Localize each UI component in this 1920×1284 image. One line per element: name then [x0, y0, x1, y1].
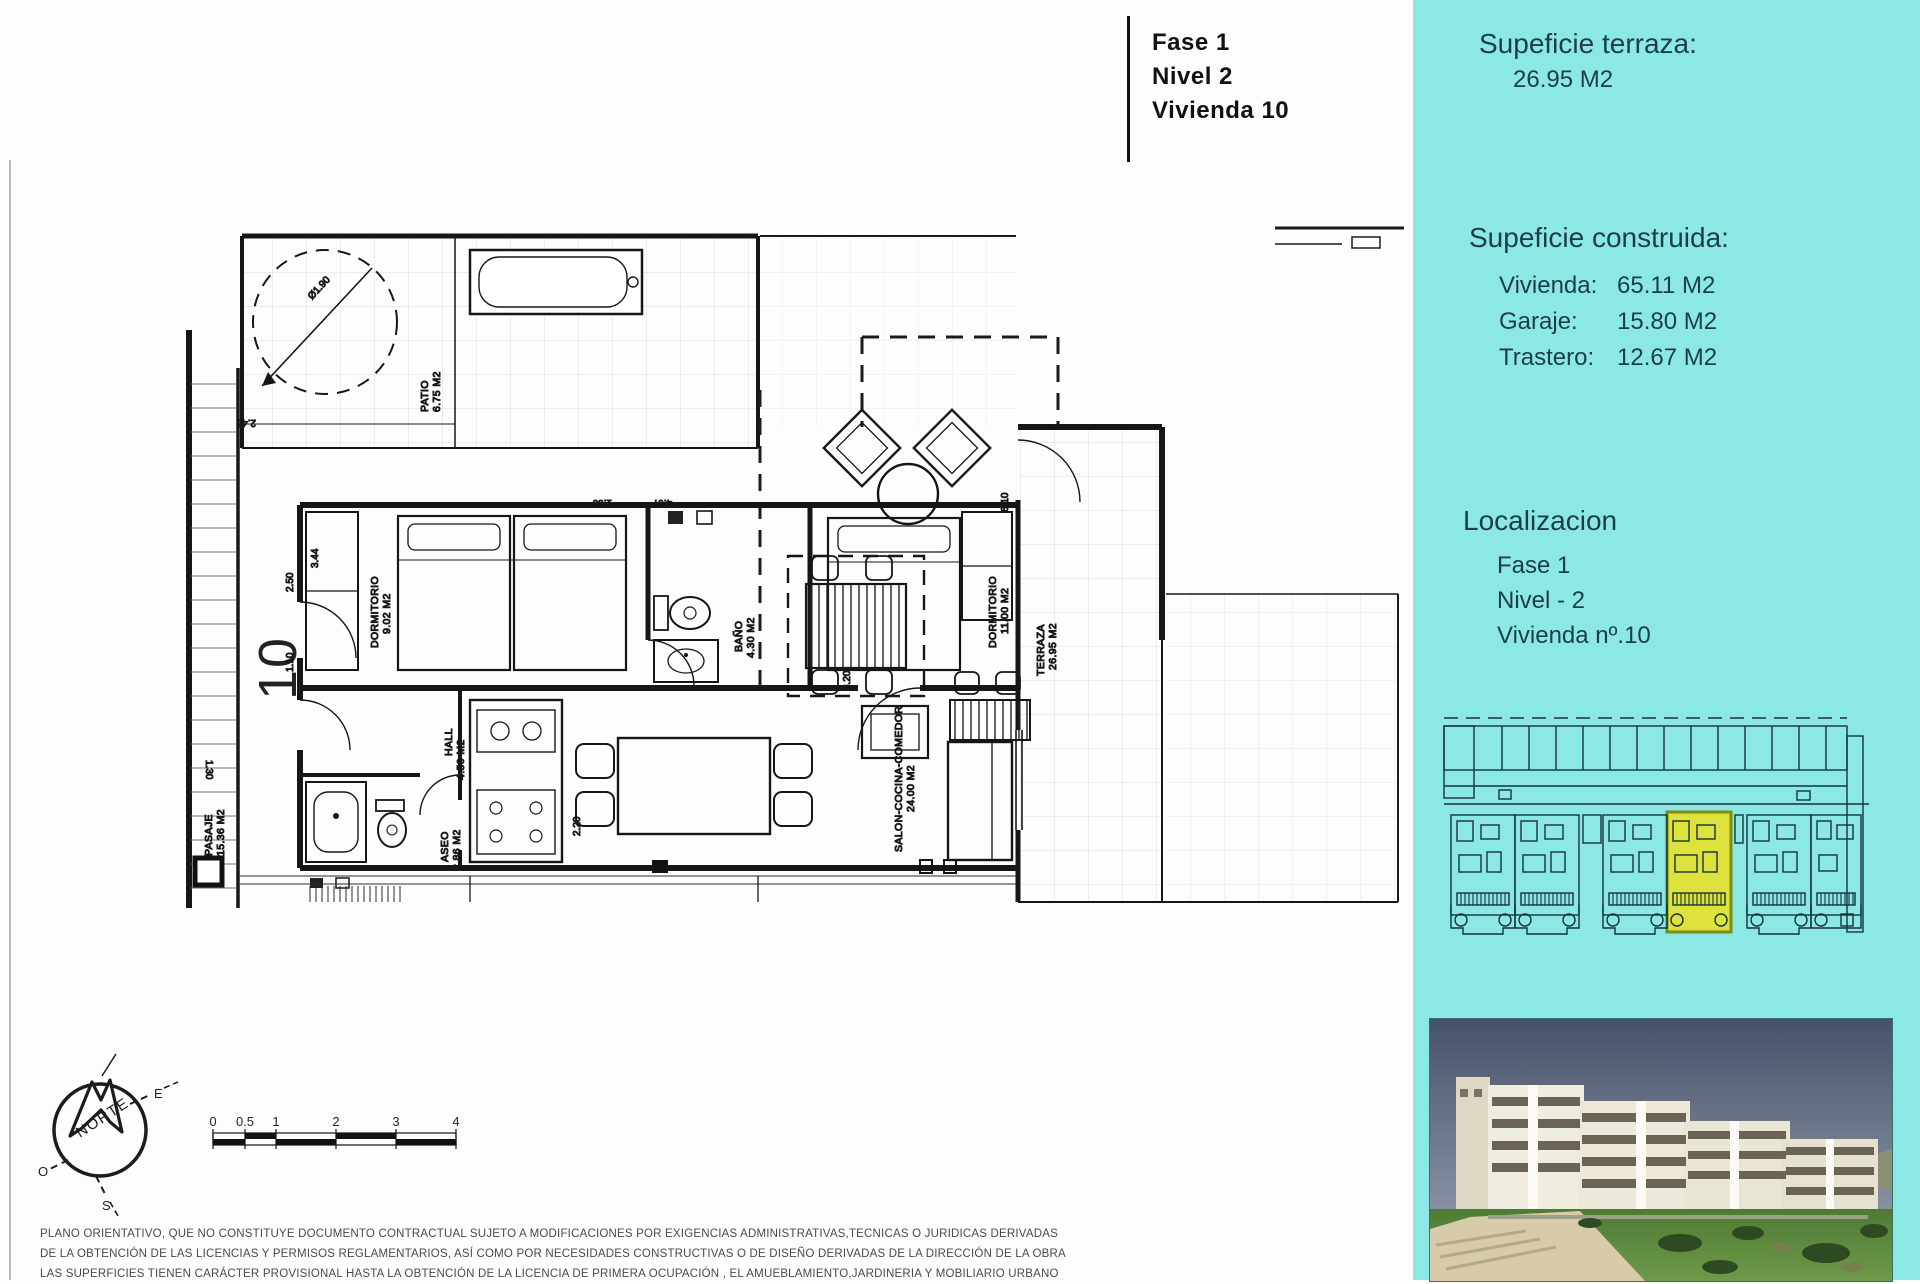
dim-2-50: 2.50 [285, 572, 296, 592]
dining-table-icon [576, 738, 812, 834]
title-divider [1127, 16, 1130, 162]
disclaimer-line-2: DE LA OBTENCIÓN DE LAS LICENCIAS Y PERMI… [40, 1244, 1150, 1264]
loc-fase: Fase 1 [1497, 548, 1651, 583]
unit-modules [1451, 815, 1861, 934]
tiled-areas [242, 236, 1396, 902]
construida-row-garaje: Garaje: 15.80 M2 [1499, 304, 1717, 340]
compass-west-label: O [38, 1164, 48, 1179]
round-table-icon [878, 464, 938, 524]
bano-label: BAÑO [732, 621, 745, 652]
wardrobe-icon [306, 512, 358, 670]
bathtub-icon [470, 250, 642, 314]
patio-label: PATIO [419, 380, 431, 412]
wall-fixture-icon [697, 511, 712, 524]
site-plan-diagram [1439, 708, 1899, 1008]
compass-rose-icon: NORTE E O S [38, 1054, 178, 1216]
bano-room: BAÑO 4.30 M2 1.60 4.07 [592, 497, 810, 688]
dim-3-20: 3.20 [842, 670, 853, 690]
building-render-photo [1429, 1018, 1893, 1282]
terraza-label: TERRAZA [1035, 624, 1047, 676]
compass-east-label: E [154, 1086, 163, 1101]
loc-nivel: Nivel - 2 [1497, 583, 1651, 618]
dorm2-area: 11.00 M2 [999, 588, 1011, 634]
kitchen-counter-icon [470, 700, 562, 862]
scale-tick-4: 4 [452, 1114, 459, 1129]
localizacion-heading: Localizacion [1463, 505, 1617, 537]
sofa-icon [948, 742, 1012, 860]
scale-tick-0: 0 [209, 1114, 216, 1129]
bano-area: 4.30 M2 [745, 617, 757, 658]
dorm1-area: 9.02 M2 [381, 593, 393, 634]
dim-1-30: 1.30 [203, 760, 214, 780]
pasaje-label: PASAJE [203, 814, 215, 856]
toilet-icon [376, 800, 406, 847]
dorm2-label: DORMITORIO [987, 576, 999, 648]
pasaje-corridor: PASAJE 15.36 M2 1.30 [189, 330, 238, 908]
disclaimer-line-1: PLANO ORIENTATIVO, QUE NO CONSTITUYE DOC… [40, 1224, 1150, 1244]
dim-1-10: 1.10 [285, 652, 296, 672]
hall-aseo: HALL 4.50 M2 ASEO 2.86 M2 [300, 688, 467, 888]
hall-label: HALL [443, 728, 455, 756]
salon-area: 24.00 M2 [905, 765, 917, 812]
hall-area: 4.50 M2 [455, 739, 467, 780]
title-vivienda: Vivienda 10 [1152, 94, 1289, 128]
terraza-value: 26.95 M2 [1513, 66, 1613, 94]
aseo-label: ASEO [439, 831, 451, 862]
construida-row-vivienda: Vivienda: 65.11 M2 [1499, 268, 1717, 304]
title-fase: Fase 1 [1152, 26, 1289, 60]
vanity-sink-icon [306, 782, 366, 862]
lower-strip [240, 876, 1016, 902]
aseo-area: 2.86 M2 [451, 829, 463, 870]
construida-heading: Supeficie construida: [1469, 222, 1729, 254]
compass-south-label: S [102, 1198, 111, 1213]
disclaimer-text: PLANO ORIENTATIVO, QUE NO CONSTITUYE DOC… [40, 1224, 1150, 1284]
scale-bar: 0 0.5 1 2 3 4 [209, 1114, 459, 1149]
construida-row-trastero: Trastero: 12.67 M2 [1499, 340, 1717, 376]
loc-vivienda: Vivienda nº.10 [1497, 618, 1651, 653]
pasaje-area: 15.36 M2 [215, 809, 227, 856]
dim-3-44: 3.44 [310, 548, 321, 568]
scale-tick-3: 3 [392, 1114, 399, 1129]
twin-beds-icon [398, 516, 626, 670]
dim-1-60: 1.60 [592, 497, 612, 508]
toilet-icon [654, 596, 710, 630]
scale-tick-1: 1 [272, 1114, 279, 1129]
title-nivel: Nivel 2 [1152, 60, 1289, 94]
construida-rows: Vivienda: 65.11 M2 Garaje: 15.80 M2 Tras… [1499, 268, 1717, 376]
scale-tick-05: 0.5 [236, 1114, 254, 1129]
localizacion-lines: Fase 1 Nivel - 2 Vivienda nº.10 [1497, 548, 1651, 653]
terraza-area-label: 26.95 M2 [1047, 623, 1059, 670]
dorm1-label: DORMITORIO [369, 576, 381, 648]
disclaimer-line-3: LAS SUPERFICIES TIENEN CARÁCTER PROVISIO… [40, 1264, 1150, 1284]
scale-tick-2: 2 [332, 1114, 339, 1129]
terraza-heading: Supeficie terraza: [1479, 28, 1697, 60]
dim-2-20: 2.20 [572, 816, 583, 836]
patio-area: 6.75 M2 [431, 371, 443, 412]
dim-2-46: 2.46 [236, 417, 256, 428]
title-block: Fase 1 Nivel 2 Vivienda 10 [1152, 26, 1289, 128]
info-sidebar: Supeficie terraza: 26.95 M2 Supeficie co… [1413, 0, 1920, 1280]
dim-6-10: 6.10 [1000, 492, 1011, 512]
dim-4-07: 4.07 [652, 497, 672, 508]
salon-cocina-comedor: SALON-COCINA-COMEDOR 24.00 M2 2.20 [300, 700, 1016, 873]
salon-label: SALON-COCINA-COMEDOR [893, 706, 905, 852]
plan-sheet: PASAJE 15.36 M2 1.30 10 Ø1.90 [0, 0, 1920, 1280]
wall-fixture-icon [668, 511, 683, 524]
